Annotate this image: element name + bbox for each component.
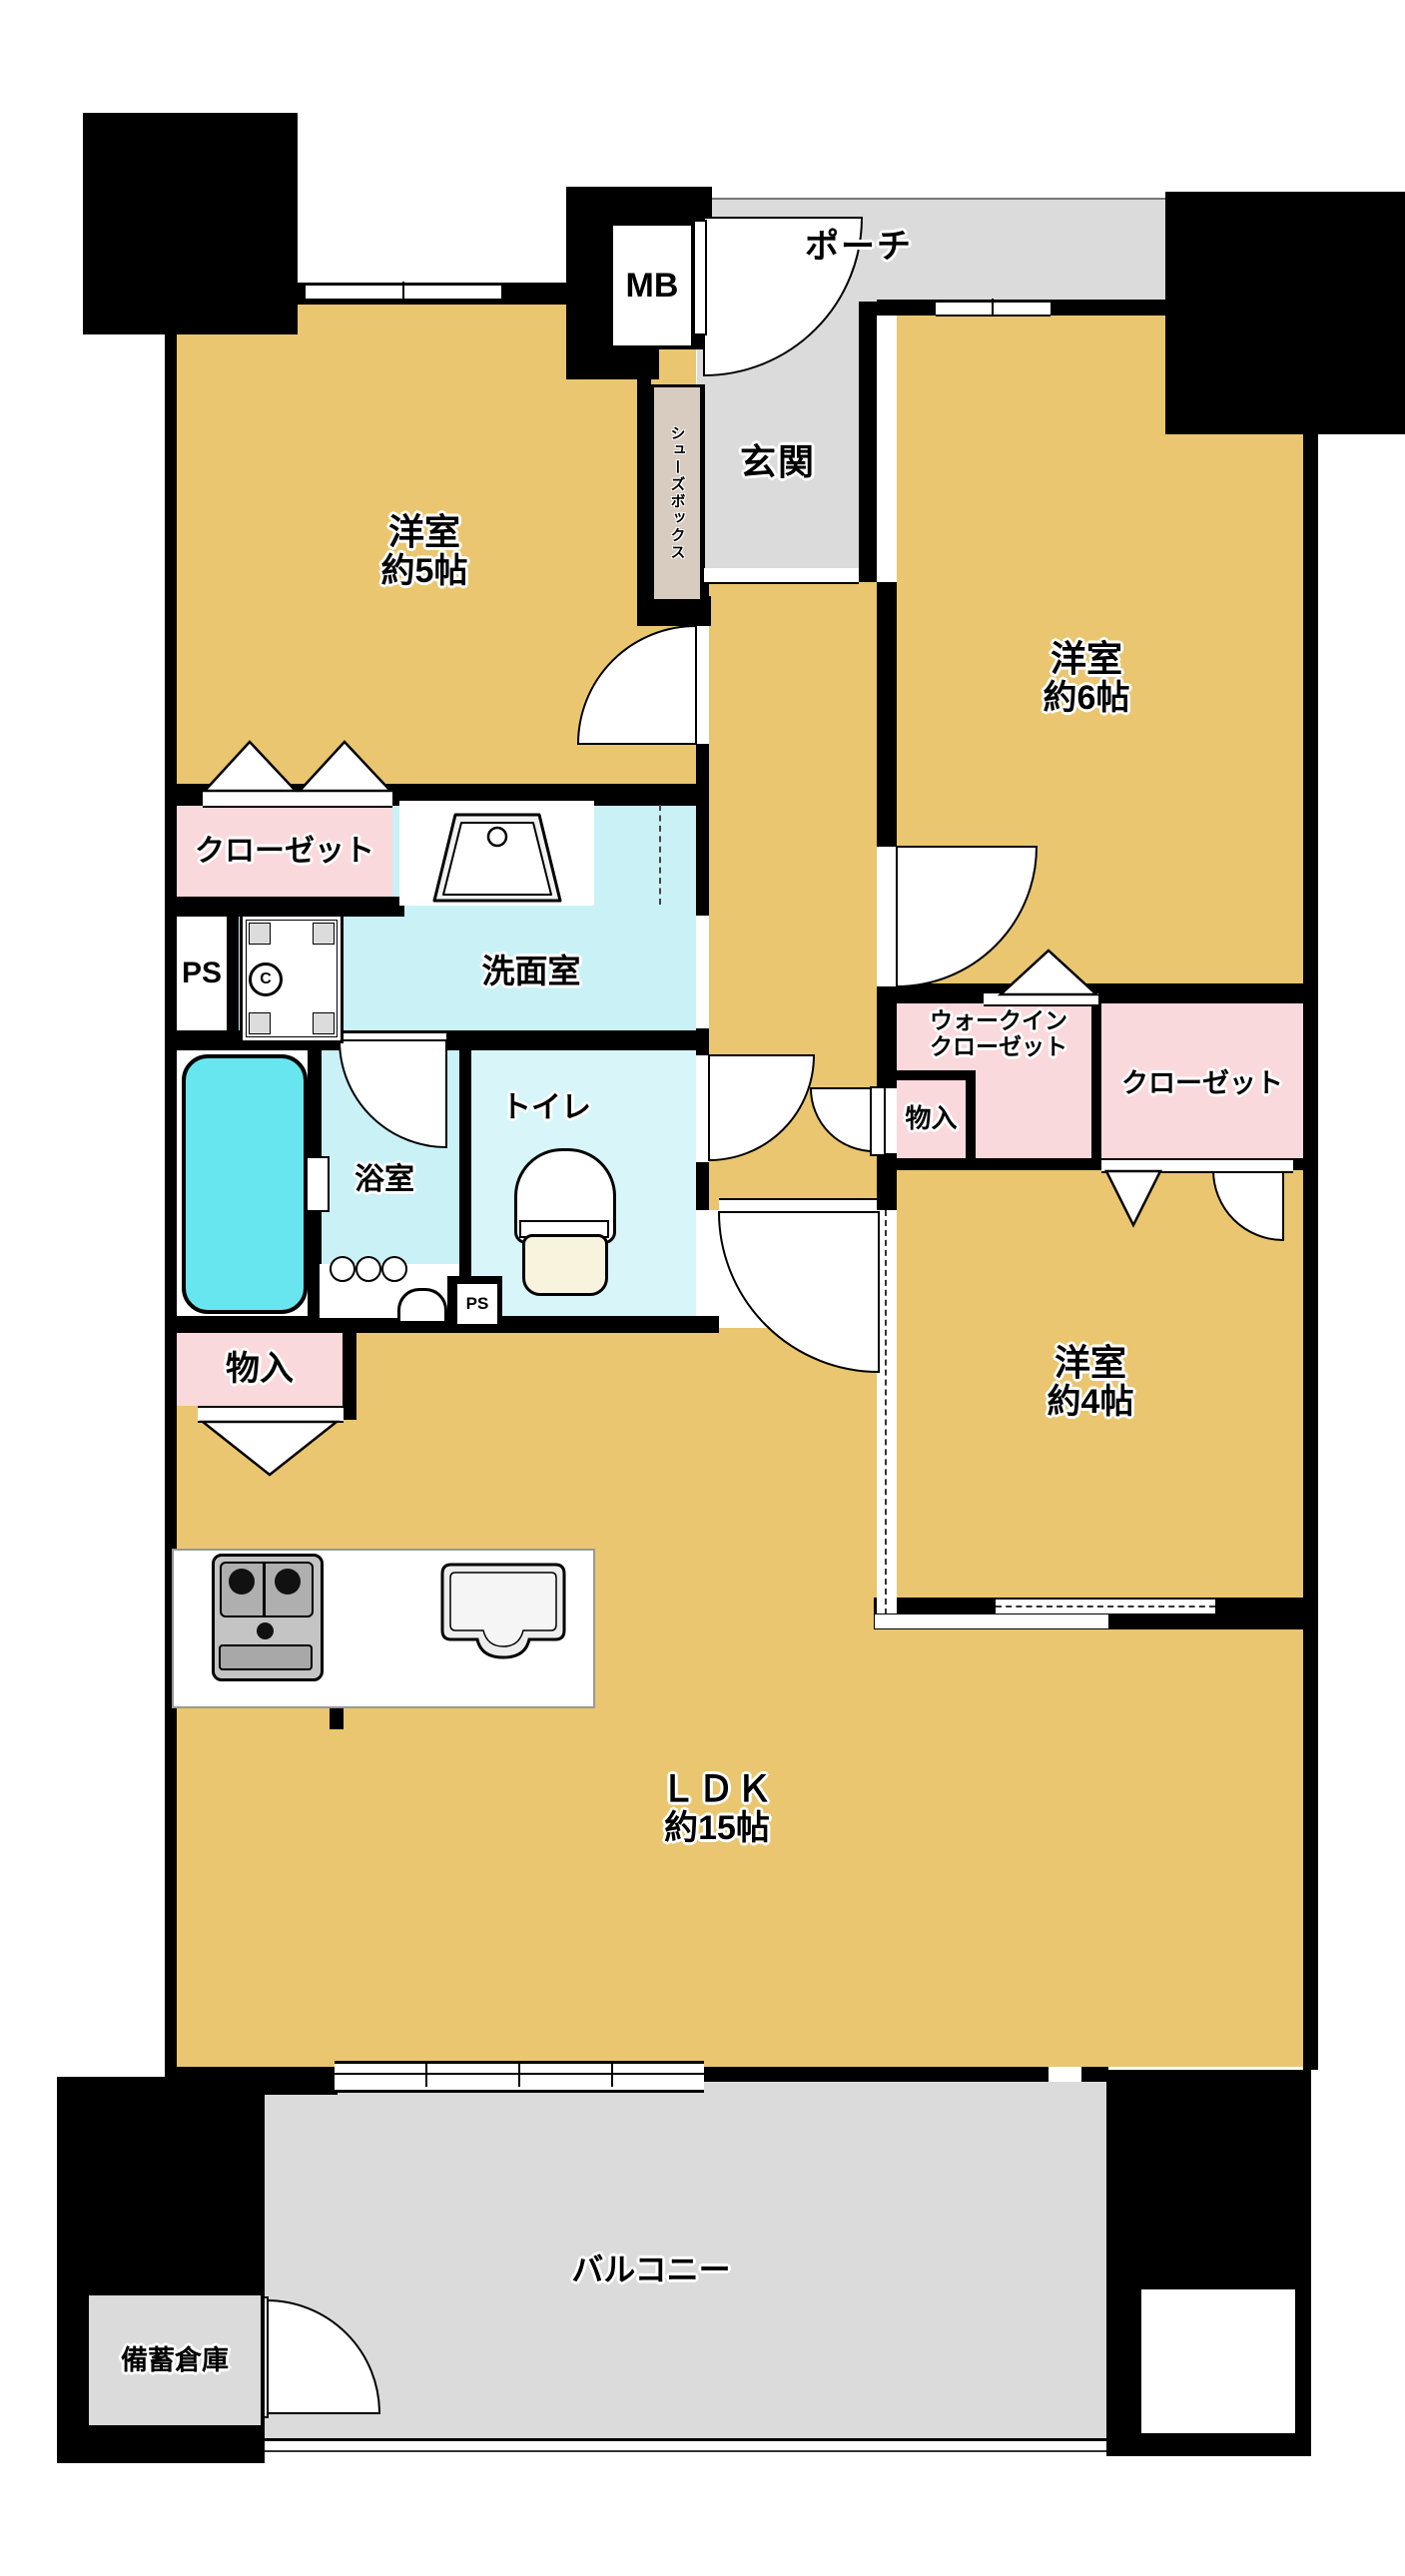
ps-left-label: PS [182, 957, 222, 990]
wic-line2: クローゼット [909, 1034, 1088, 1060]
washroom-label: 洗面室 [431, 954, 631, 990]
storage-left-fold-icon [200, 1421, 340, 1477]
toilet-door-arc [709, 1055, 814, 1160]
ldk-size: 約15帖 [592, 1809, 842, 1847]
west4-name: 洋室 [966, 1343, 1215, 1383]
reserve-storage-label: 備蓄倉庫 [121, 2345, 229, 2375]
kitchen-sink-icon [437, 1561, 569, 1662]
washroom-mirror-dashed [659, 805, 661, 905]
wall-left-outer [165, 296, 177, 2067]
balcony-label: バルコニー [526, 2253, 776, 2288]
west4-size: 約4帖 [966, 1383, 1215, 1421]
west6-label: 洋室 約6帖 [962, 639, 1211, 717]
storage-hall-label: 物入 [905, 1104, 957, 1133]
wall-toilet-left [459, 1040, 471, 1316]
west4-sliding-bottom-b [874, 1613, 1109, 1629]
west4-door-arc [1213, 1170, 1283, 1240]
ldk-label: ＬＤＫ 約15帖 [592, 1769, 842, 1847]
gap-west6-door [877, 847, 897, 986]
storagehall-door-arc [811, 1088, 874, 1151]
wall-ldk-bottom-left [260, 2067, 338, 2095]
balcony-rail [265, 2438, 1106, 2452]
storage-hall-label-wrap: 物入 [897, 1080, 966, 1158]
wall-storagehall-top [897, 1070, 976, 1080]
storage-left-label-wrap: 物入 [177, 1333, 343, 1406]
wall-storagehall-right [966, 1080, 976, 1163]
closet-left-label: クローゼット [195, 835, 374, 869]
pillar-top-left [83, 113, 298, 334]
shoebox-label: シューズボックス [667, 425, 688, 561]
wic-fold-icon [999, 949, 1098, 994]
ps-small-box: PS [457, 1284, 497, 1324]
reserve-door-arc [267, 2300, 380, 2414]
closet-left-fold-icon [203, 739, 392, 791]
wall-wic-closet [1091, 1003, 1101, 1170]
stove-icon [212, 1554, 324, 1681]
wall-ps-right [227, 917, 239, 1030]
bathtub-icon [182, 1054, 308, 1314]
mb-label: MB [626, 267, 679, 305]
wall-shoebox-left [637, 374, 651, 611]
shoebox-box: シューズボックス [651, 384, 703, 602]
ldk-area-right [877, 1629, 1303, 2067]
storagehall-door-leaf [870, 1086, 886, 1156]
wall-west4-left-top [877, 1170, 897, 1210]
west4-sliding-bottom-a [996, 1600, 1215, 1613]
west6-name: 洋室 [962, 639, 1211, 679]
pillar-bottom-right-cutout [1141, 2289, 1295, 2433]
bath-door-arc [340, 1040, 446, 1147]
washer-pan-icon: C [240, 914, 344, 1043]
west6-size: 約6帖 [962, 679, 1211, 717]
reserve-storage-box: 備蓄倉庫 [85, 2291, 265, 2429]
wic-label: ウォークイン クローゼット [909, 1008, 1088, 1060]
window-west6-top [936, 301, 1051, 317]
washroom-sink-icon [427, 811, 567, 907]
window-notch [1049, 2067, 1081, 2082]
wall-right-outer [1303, 300, 1318, 2070]
ldk-name: ＬＤＫ [592, 1769, 842, 1809]
west4-label: 洋室 約4帖 [966, 1343, 1215, 1421]
closet-right-label: クローゼット [1121, 1068, 1283, 1098]
window-west5-top [306, 284, 501, 301]
toilet-seat-icon [522, 1234, 608, 1296]
bath-faucet-3 [381, 1256, 407, 1282]
west5-name: 洋室 [300, 512, 549, 552]
ps-small-label: PS [466, 1294, 489, 1313]
window-ldk-balcony [335, 2061, 704, 2093]
wall-storage-left-right [343, 1328, 356, 1420]
gap-west5-door [696, 626, 709, 744]
gap-washroom-door [696, 916, 709, 1028]
genkan-step [704, 568, 859, 584]
ldk-door-arc [719, 1212, 879, 1372]
closet-right-fold-icon [1103, 1170, 1163, 1228]
closet-right-label-wrap: クローゼット [1101, 1038, 1303, 1128]
west5-label: 洋室 約5帖 [300, 512, 549, 590]
bath-stool [397, 1288, 447, 1321]
bath-faucet-2 [355, 1256, 381, 1282]
mb-box: MB [609, 222, 695, 349]
floor-plan: MB シューズボックス C PS [0, 0, 1405, 2576]
west5-door-arc [578, 626, 696, 744]
genkan-label: 玄関 [703, 442, 853, 482]
closet-left-label-wrap: クローゼット [177, 806, 392, 897]
toilet-label: トイレ [471, 1091, 621, 1125]
wic-line1: ウォークイン [909, 1008, 1088, 1034]
bath-label: 浴室 [320, 1163, 449, 1197]
bath-faucet-1 [330, 1256, 355, 1282]
ps-left-label-wrap: PS [177, 917, 227, 1030]
porch-label: ポーチ [759, 228, 959, 266]
west5-size: 約5帖 [300, 552, 549, 590]
storage-left-label: 物入 [226, 1350, 294, 1388]
gap-toilet-door [696, 1055, 709, 1162]
washer-drain-icon: C [249, 963, 283, 996]
